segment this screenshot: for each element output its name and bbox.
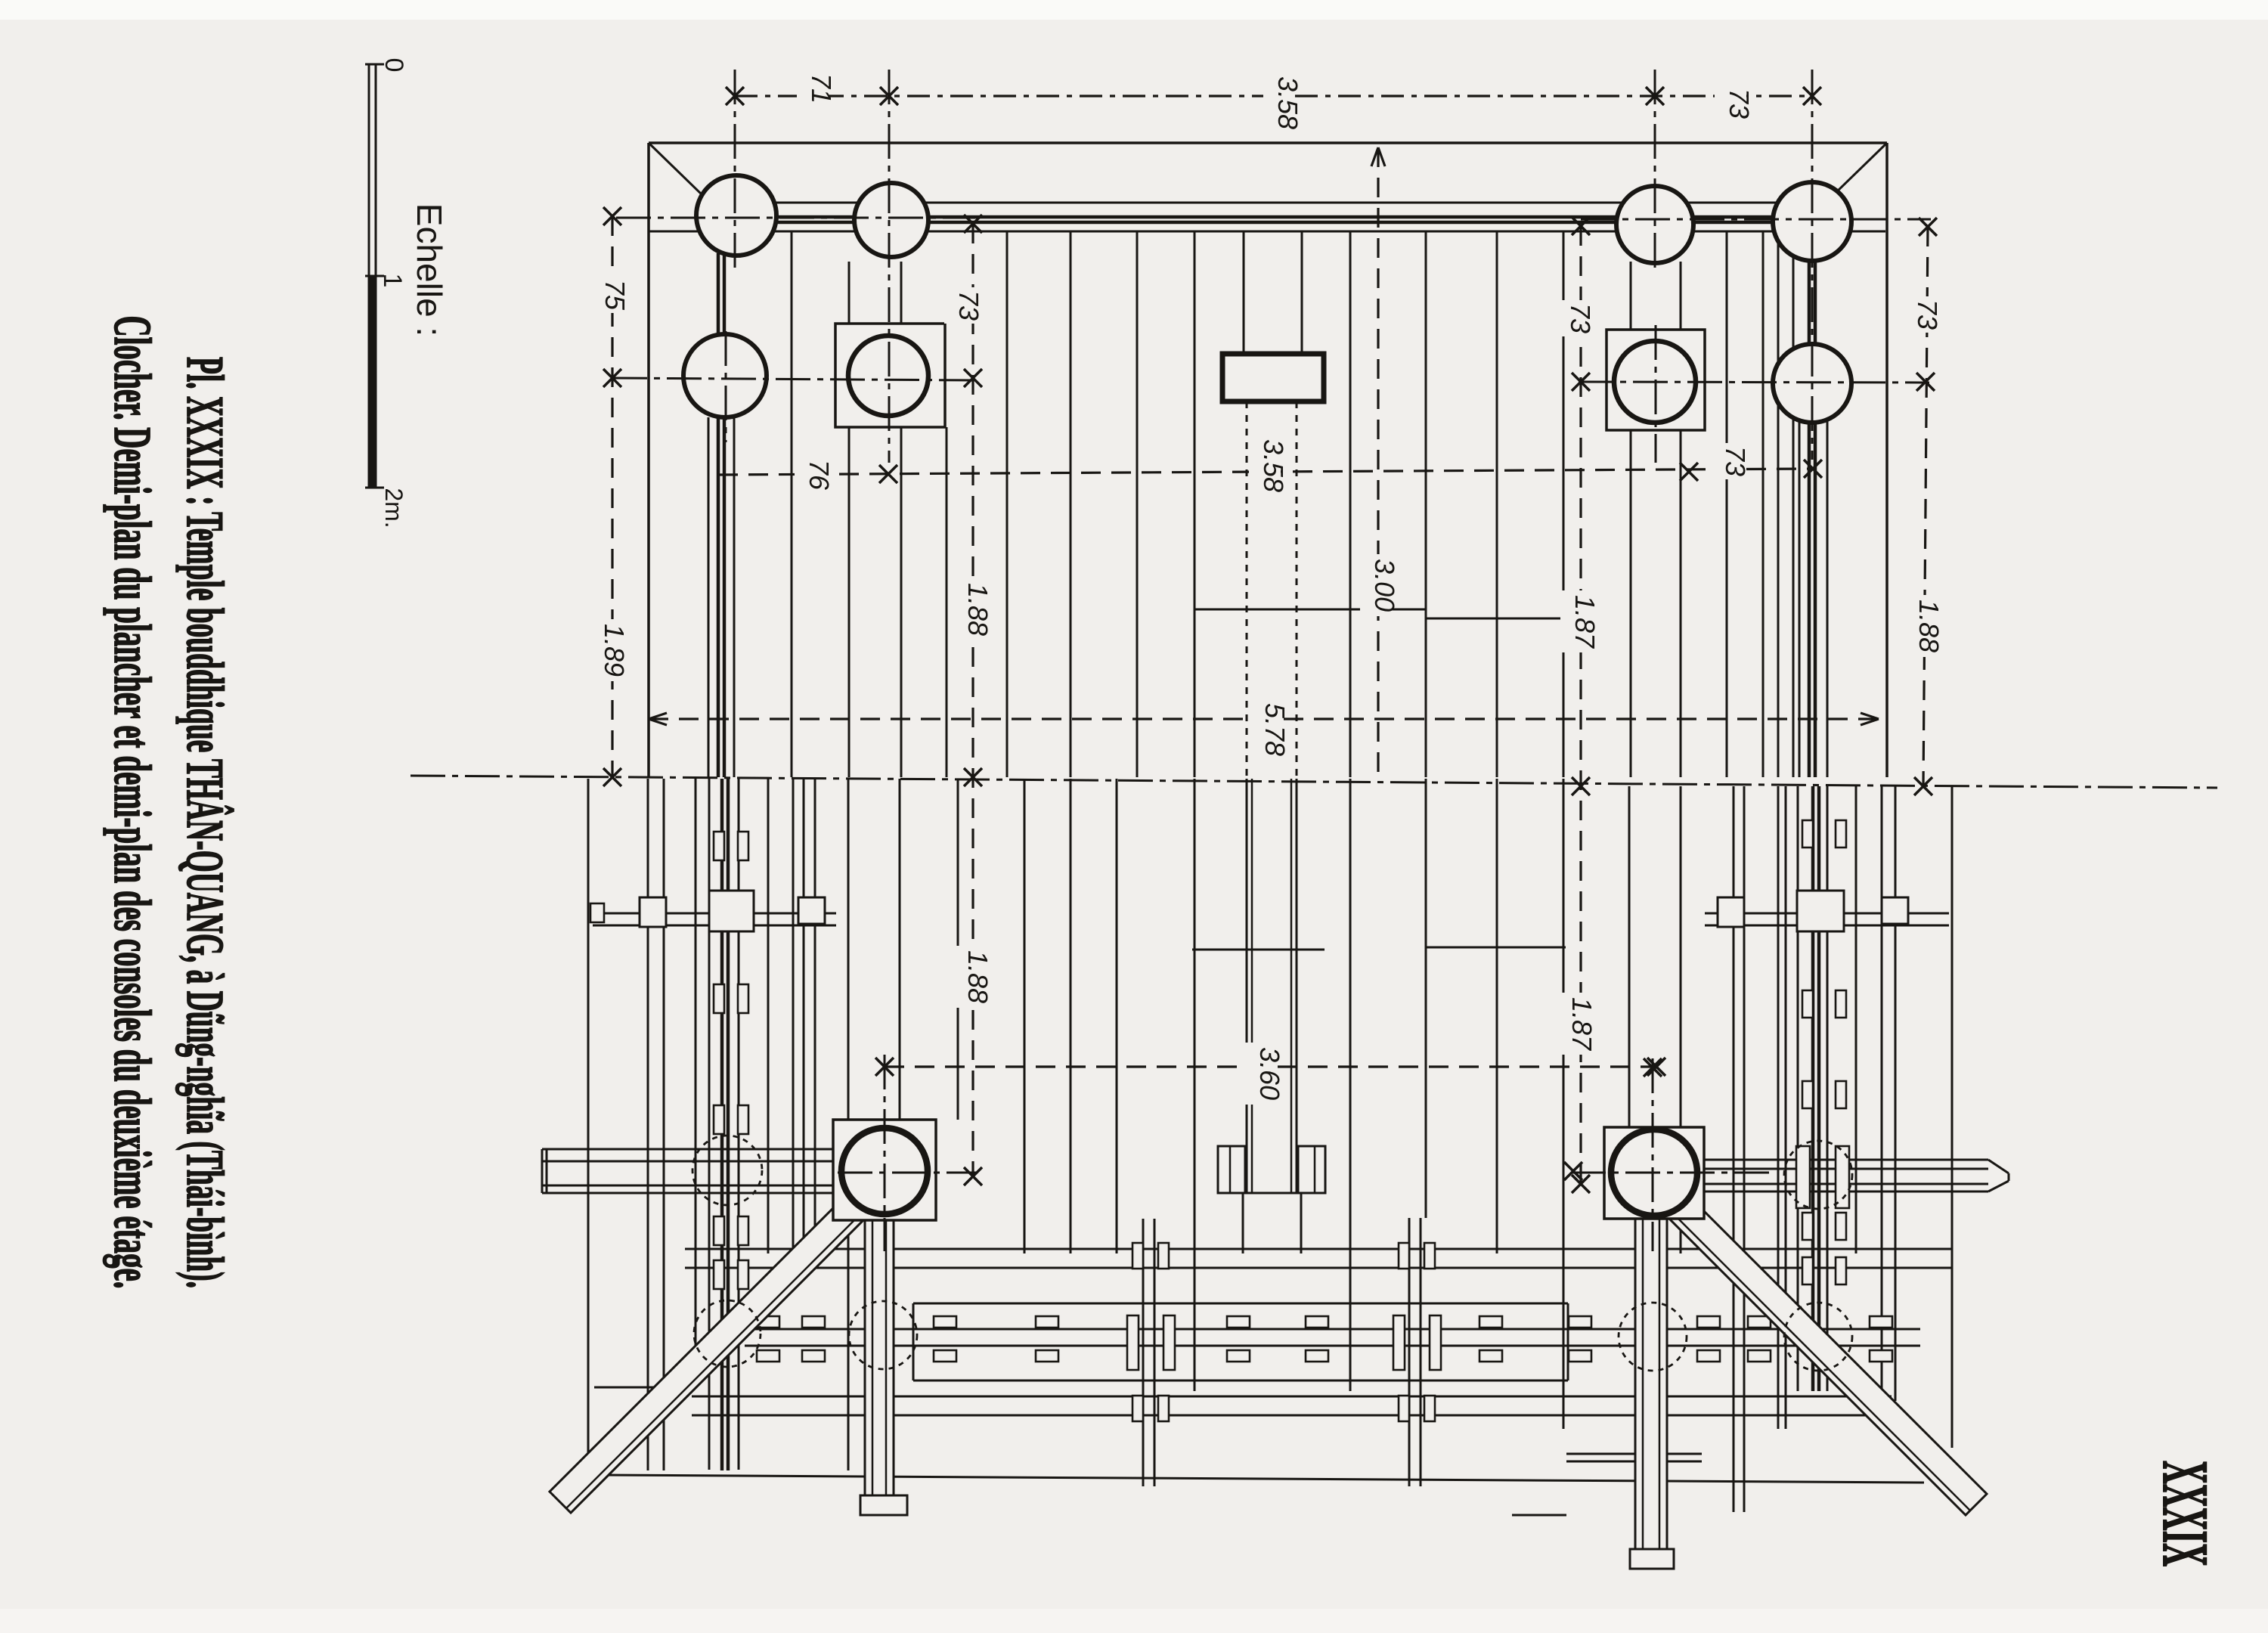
svg-text:73: 73 — [953, 290, 984, 321]
svg-text:73: 73 — [1912, 299, 1943, 330]
svg-text:71: 71 — [806, 73, 837, 104]
svg-text:1.87: 1.87 — [1566, 997, 1597, 1052]
svg-text:1.88: 1.88 — [962, 583, 993, 636]
svg-text:2m.: 2m. — [380, 488, 407, 528]
svg-text:XXXIX: XXXIX — [2149, 1461, 2222, 1566]
svg-text:0: 0 — [380, 58, 408, 73]
svg-text:3.60: 3.60 — [1254, 1047, 1285, 1100]
svg-text:5.78: 5.78 — [1259, 703, 1290, 756]
svg-text:1: 1 — [378, 274, 407, 288]
svg-text:Clocher. Demi-plan du plancher: Clocher. Demi-plan du plancher et demi-p… — [103, 316, 161, 1289]
svg-text:75: 75 — [600, 280, 631, 311]
svg-text:73: 73 — [1724, 88, 1755, 119]
svg-text:1.89: 1.89 — [599, 624, 630, 677]
svg-text:3.00: 3.00 — [1369, 559, 1400, 612]
svg-text:76: 76 — [804, 460, 835, 491]
svg-text:3.58: 3.58 — [1272, 76, 1303, 129]
svg-text:73: 73 — [1565, 303, 1596, 333]
svg-text:1.88: 1.88 — [962, 950, 993, 1003]
svg-text:Echelle :: Echelle : — [410, 203, 449, 336]
svg-text:Pl. XXXIX : Temple bouddhique: Pl. XXXIX : Temple bouddhique THÂN-QUANG… — [175, 357, 234, 1288]
svg-text:1.87: 1.87 — [1569, 595, 1600, 649]
svg-text:3.58: 3.58 — [1258, 439, 1289, 492]
svg-text:73: 73 — [1720, 446, 1751, 476]
svg-text:1.88: 1.88 — [1913, 600, 1944, 652]
